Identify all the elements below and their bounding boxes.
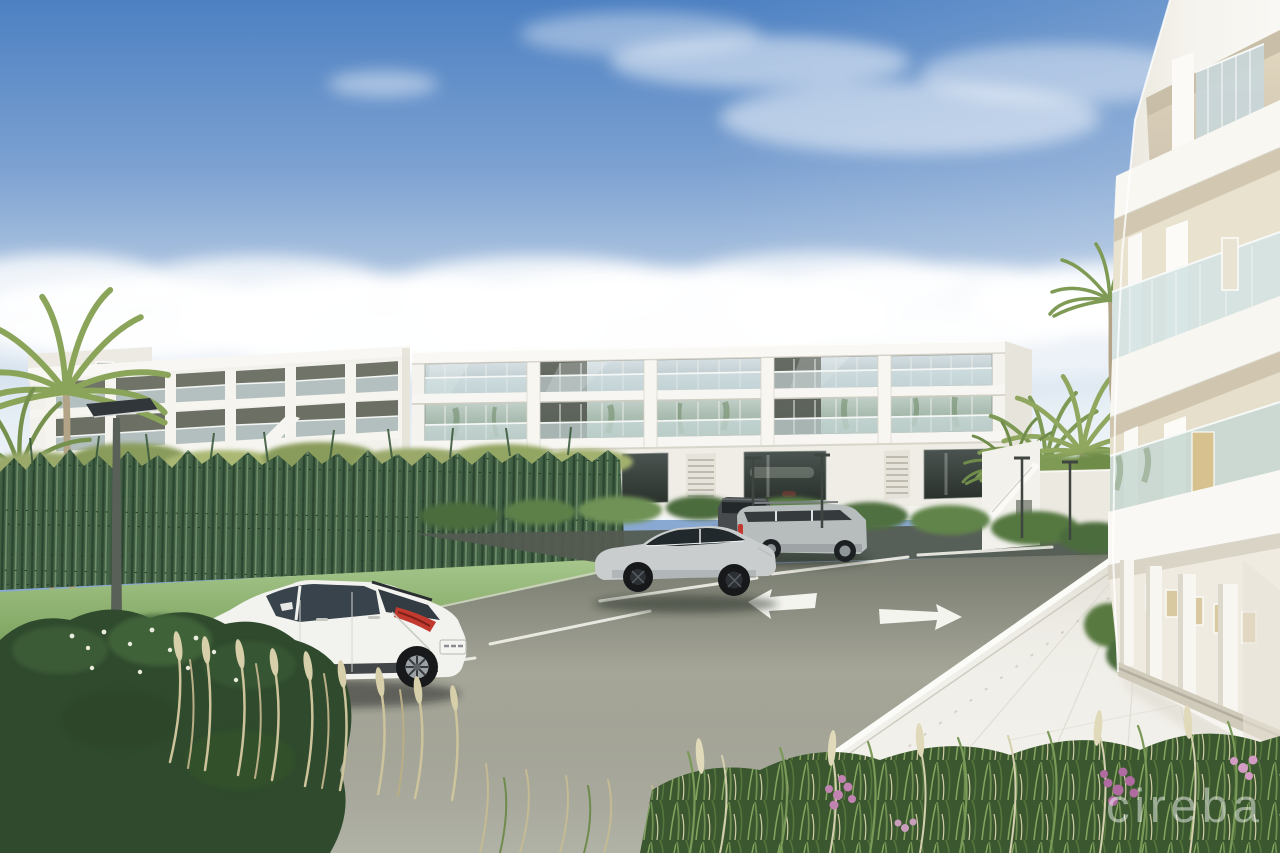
cireba-watermark: cireba [1106, 779, 1264, 832]
corner-niche [1222, 238, 1238, 290]
roof-rails [752, 502, 838, 503]
tan-door [1192, 432, 1214, 494]
property-rendering: cireba [0, 0, 1280, 853]
